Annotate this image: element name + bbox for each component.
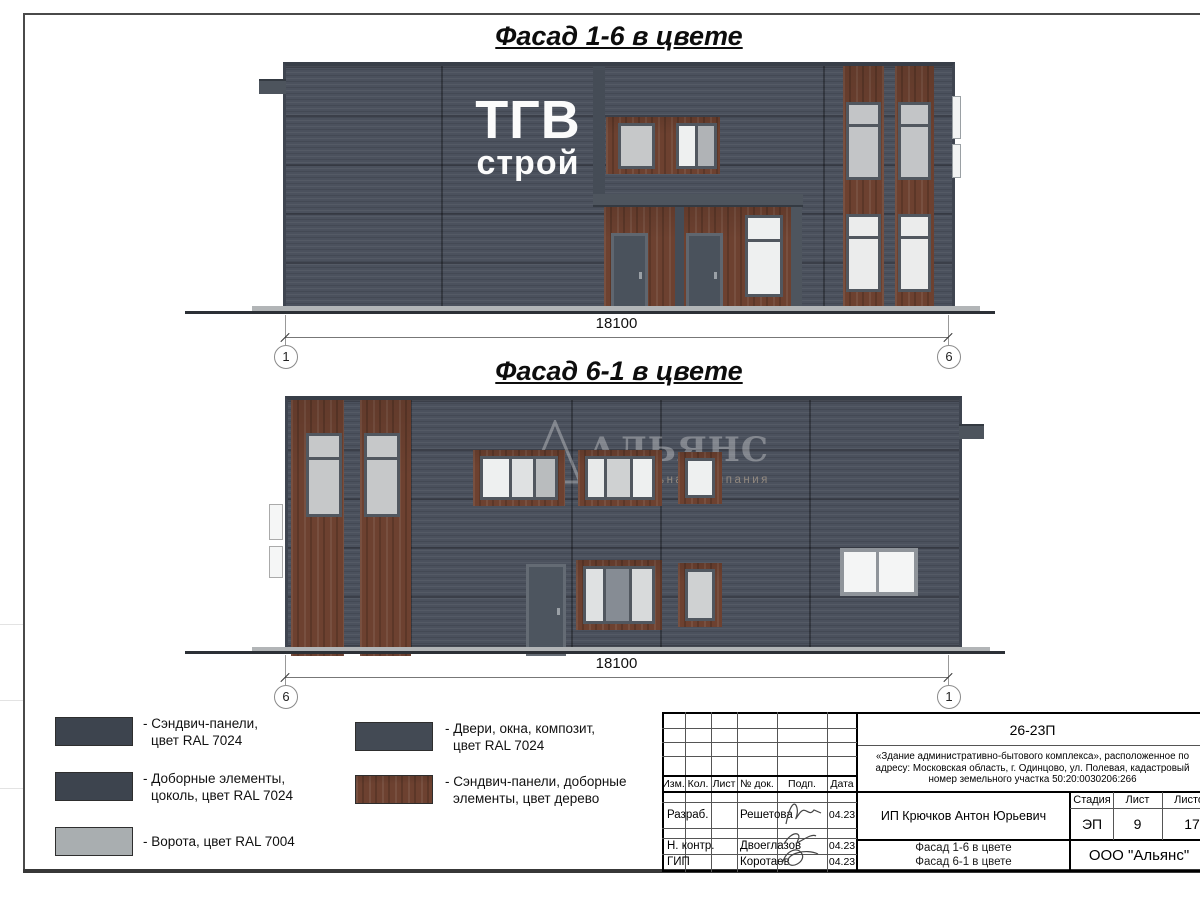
- tb-client: ИП Крючков Антон Юрьевич: [858, 793, 1069, 839]
- dimension-value: 18100: [285, 315, 948, 332]
- downspout: [269, 504, 283, 540]
- window-pane: [844, 552, 879, 592]
- window-pane: [512, 459, 536, 497]
- drawing-sheet: Фасад 1-6 в цвете ТГВ строй: [0, 0, 1200, 900]
- tb-date: 04.23: [827, 838, 857, 854]
- window-transom: [901, 105, 928, 127]
- facade2-title: Фасад 6-1 в цвете: [283, 356, 955, 387]
- dimension-line: [285, 677, 948, 678]
- legend-line: - Ворота, цвет RAL 7004: [143, 833, 295, 850]
- legend-swatch-gates: [55, 827, 133, 856]
- downspout: [952, 96, 961, 139]
- facade1-drawing: ТГВ строй: [283, 62, 955, 310]
- window: [745, 215, 783, 297]
- legend-swatch-doors-windows: [355, 722, 433, 751]
- tb-col-list: Лист: [711, 776, 737, 792]
- downspout: [952, 144, 961, 178]
- window-transom: [849, 105, 878, 127]
- window-pane: [588, 459, 607, 497]
- window: [585, 456, 655, 500]
- dimension-value: 18100: [285, 655, 948, 672]
- frame-left-border: [23, 13, 25, 872]
- window-transom: [748, 218, 780, 242]
- tb-date: 04.23: [827, 854, 857, 870]
- tb-stage-label: Стадия: [1071, 792, 1113, 808]
- tb-sheets-label: Листов: [1162, 792, 1200, 808]
- window-pane: [607, 459, 633, 497]
- window-pane: [633, 459, 652, 497]
- facade2-drawing: АЛЬЯНС строительная компания: [285, 396, 962, 652]
- door-handle: [714, 272, 717, 279]
- column-cover: [675, 207, 684, 314]
- tb-sheet-value: 9: [1113, 809, 1162, 839]
- dimension-line: [285, 337, 948, 338]
- window: [898, 102, 931, 180]
- legend-swatch-sandwich-panels: [55, 717, 133, 746]
- canopy-support: [791, 207, 802, 314]
- door-handle: [639, 272, 642, 279]
- axis-marker: 6: [274, 685, 298, 709]
- witness-line: [948, 655, 949, 685]
- tb-sheet-label: Лист: [1113, 792, 1162, 808]
- tb-line: [662, 742, 857, 743]
- title-block: Изм. Кол. Лист № док. Подп. Дата Разраб.…: [662, 712, 1200, 872]
- tb-col-podp: Подп.: [777, 776, 827, 792]
- legend-line: - Сэндвич-панели,: [143, 715, 258, 732]
- margin-mark: [0, 624, 23, 625]
- window-pane: [536, 459, 555, 497]
- logo-text-bottom: строй: [458, 146, 598, 180]
- tb-company: ООО "Альянс": [1071, 841, 1200, 870]
- tb-line: [662, 728, 857, 729]
- window: [898, 214, 931, 292]
- window: [846, 214, 881, 292]
- ground-line: [185, 651, 1005, 654]
- window-pane: [632, 569, 652, 621]
- window-pane: [679, 126, 698, 166]
- window: [364, 433, 400, 517]
- roof-outlet: [259, 79, 286, 94]
- panel-joint: [441, 66, 443, 310]
- legend-label: - Ворота, цвет RAL 7004: [143, 833, 295, 850]
- logo-text-top: ТГВ: [458, 96, 598, 146]
- dimension-facade2: 18100 6 1: [185, 655, 1015, 710]
- window: [306, 433, 342, 517]
- legend-swatch-wood: [355, 775, 433, 804]
- tb-sheet-title: Фасад 1-6 в цвете Фасад 6-1 в цвете: [858, 841, 1069, 870]
- entrance-door: [611, 233, 648, 314]
- legend-line: - Доборные элементы,: [143, 770, 293, 787]
- tb-project-description: «Здание административно-бытового комплек…: [862, 746, 1200, 791]
- door-handle: [557, 608, 560, 615]
- tb-col-doc: № док.: [737, 776, 777, 792]
- window: [583, 566, 655, 624]
- tb-role: Разраб.: [664, 802, 737, 828]
- panel-joint: [809, 400, 811, 652]
- tb-sheet-title-line: Фасад 6-1 в цвете: [915, 856, 1011, 870]
- downspout: [269, 546, 283, 578]
- axis-marker: 1: [937, 685, 961, 709]
- tb-col-data: Дата: [827, 776, 857, 792]
- window-transom: [367, 436, 397, 460]
- legend-line: - Двери, окна, композит,: [445, 720, 595, 737]
- signature: [780, 796, 826, 830]
- window-transom: [901, 217, 928, 239]
- legend-line: цвет RAL 7024: [143, 732, 258, 749]
- window-pane: [698, 126, 714, 166]
- panel-joint: [823, 66, 825, 310]
- building-signage: ТГВ строй: [458, 96, 598, 180]
- window: [685, 569, 715, 621]
- company-watermark: АЛЬЯНС строительная компания: [528, 420, 808, 515]
- tb-role: Н. контр.: [664, 838, 737, 854]
- legend-label: - Доборные элементы, цоколь, цвет RAL 70…: [143, 770, 293, 804]
- window-pane: [606, 569, 632, 621]
- tb-role: ГИП: [664, 854, 737, 870]
- legend-swatch-trim-elements: [55, 772, 133, 801]
- signature: [776, 828, 828, 872]
- legend-line: элементы, цвет дерево: [445, 790, 627, 807]
- door: [526, 564, 566, 656]
- window-pane: [879, 552, 914, 592]
- margin-mark: [0, 700, 23, 701]
- legend-line: цвет RAL 7024: [445, 737, 595, 754]
- window-transom: [849, 217, 878, 239]
- legend-label: - Сэндвич-панели, доборные элементы, цве…: [445, 773, 627, 807]
- witness-line: [948, 315, 949, 345]
- window-transom: [309, 436, 339, 460]
- window-pane: [483, 459, 512, 497]
- tb-col-izm: Изм.: [662, 776, 685, 792]
- column-cover: [593, 66, 605, 197]
- window: [618, 123, 655, 169]
- window: [480, 456, 558, 500]
- window: [676, 123, 717, 169]
- roof-outlet: [959, 424, 984, 439]
- facade1-title: Фасад 1-6 в цвете: [283, 21, 955, 52]
- legend-line: - Сэндвич-панели, доборные: [445, 773, 627, 790]
- tb-border: [662, 870, 1200, 872]
- ground-line: [185, 311, 995, 314]
- tb-date: 04.23: [827, 802, 857, 828]
- margin-mark: [0, 788, 23, 789]
- tb-stage-value: ЭП: [1071, 809, 1113, 839]
- window-pane: [586, 569, 606, 621]
- tb-col-kol: Кол.: [685, 776, 711, 792]
- window: [840, 548, 918, 596]
- legend-label: - Двери, окна, композит, цвет RAL 7024: [445, 720, 595, 754]
- entrance-door: [686, 233, 723, 314]
- entrance-canopy: [593, 194, 803, 207]
- tb-line: [662, 756, 857, 757]
- tb-sheets-value: 17: [1162, 809, 1200, 839]
- legend-label: - Сэндвич-панели, цвет RAL 7024: [143, 715, 258, 749]
- window: [685, 458, 715, 498]
- frame-top-border: [23, 13, 1200, 15]
- window: [846, 102, 881, 180]
- legend-line: цоколь, цвет RAL 7024: [143, 787, 293, 804]
- tb-project-code: 26-23П: [858, 714, 1200, 745]
- tb-sheet-title-line: Фасад 1-6 в цвете: [915, 842, 1011, 856]
